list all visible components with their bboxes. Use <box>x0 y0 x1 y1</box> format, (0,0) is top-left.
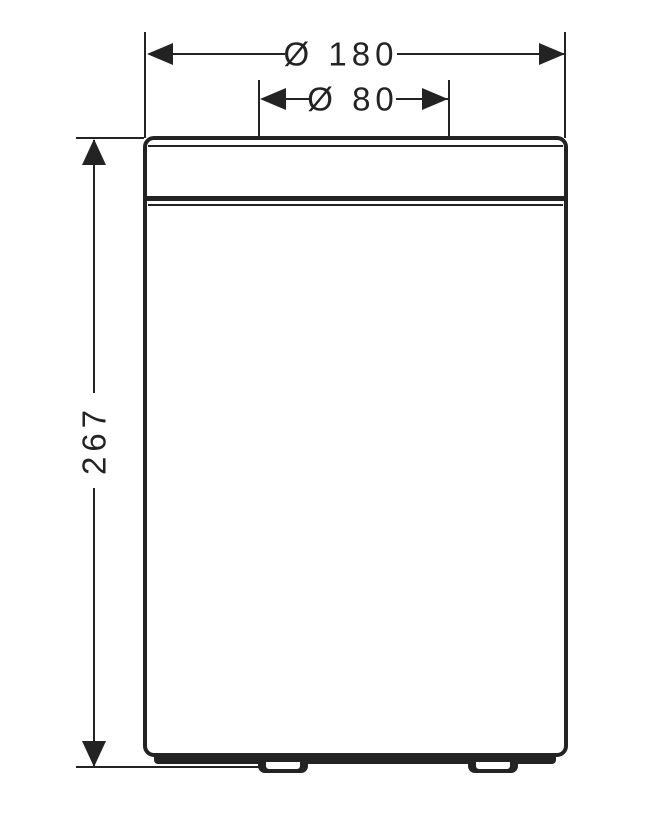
lid-top-seam-line <box>148 145 563 147</box>
bin-foot-right <box>468 757 518 773</box>
dim-height-arrow-down-icon <box>82 741 106 767</box>
dim-outer-arrow-left-icon <box>147 43 173 65</box>
dim-height-line-bottom-segment <box>93 488 95 767</box>
dim-height-line-top-segment <box>93 140 95 393</box>
bin-body-outline <box>143 136 568 757</box>
dim-height-label: 267 <box>78 405 111 475</box>
dim-height-arrow-up-icon <box>82 139 106 165</box>
dim-outer-arrow-right-icon <box>539 43 565 65</box>
lid-bottom-edge-line <box>143 196 568 201</box>
bin-foot-right-slot <box>476 762 510 769</box>
bin-foot-left-slot <box>266 762 300 769</box>
dim-opening-arrow-left-icon <box>260 88 286 110</box>
body-top-seam-line <box>148 204 563 206</box>
bin-foot-left <box>258 757 308 773</box>
dim-outer-extension-line-left <box>144 32 146 138</box>
dim-outer-diameter-label: Ø 180 <box>284 38 399 71</box>
drawing-canvas: Ø 180 Ø 80 267 <box>0 0 658 823</box>
dim-opening-diameter-label: Ø 80 <box>307 83 399 116</box>
dim-opening-arrow-right-icon <box>422 88 448 110</box>
dim-opening-extension-line-right <box>448 80 450 138</box>
